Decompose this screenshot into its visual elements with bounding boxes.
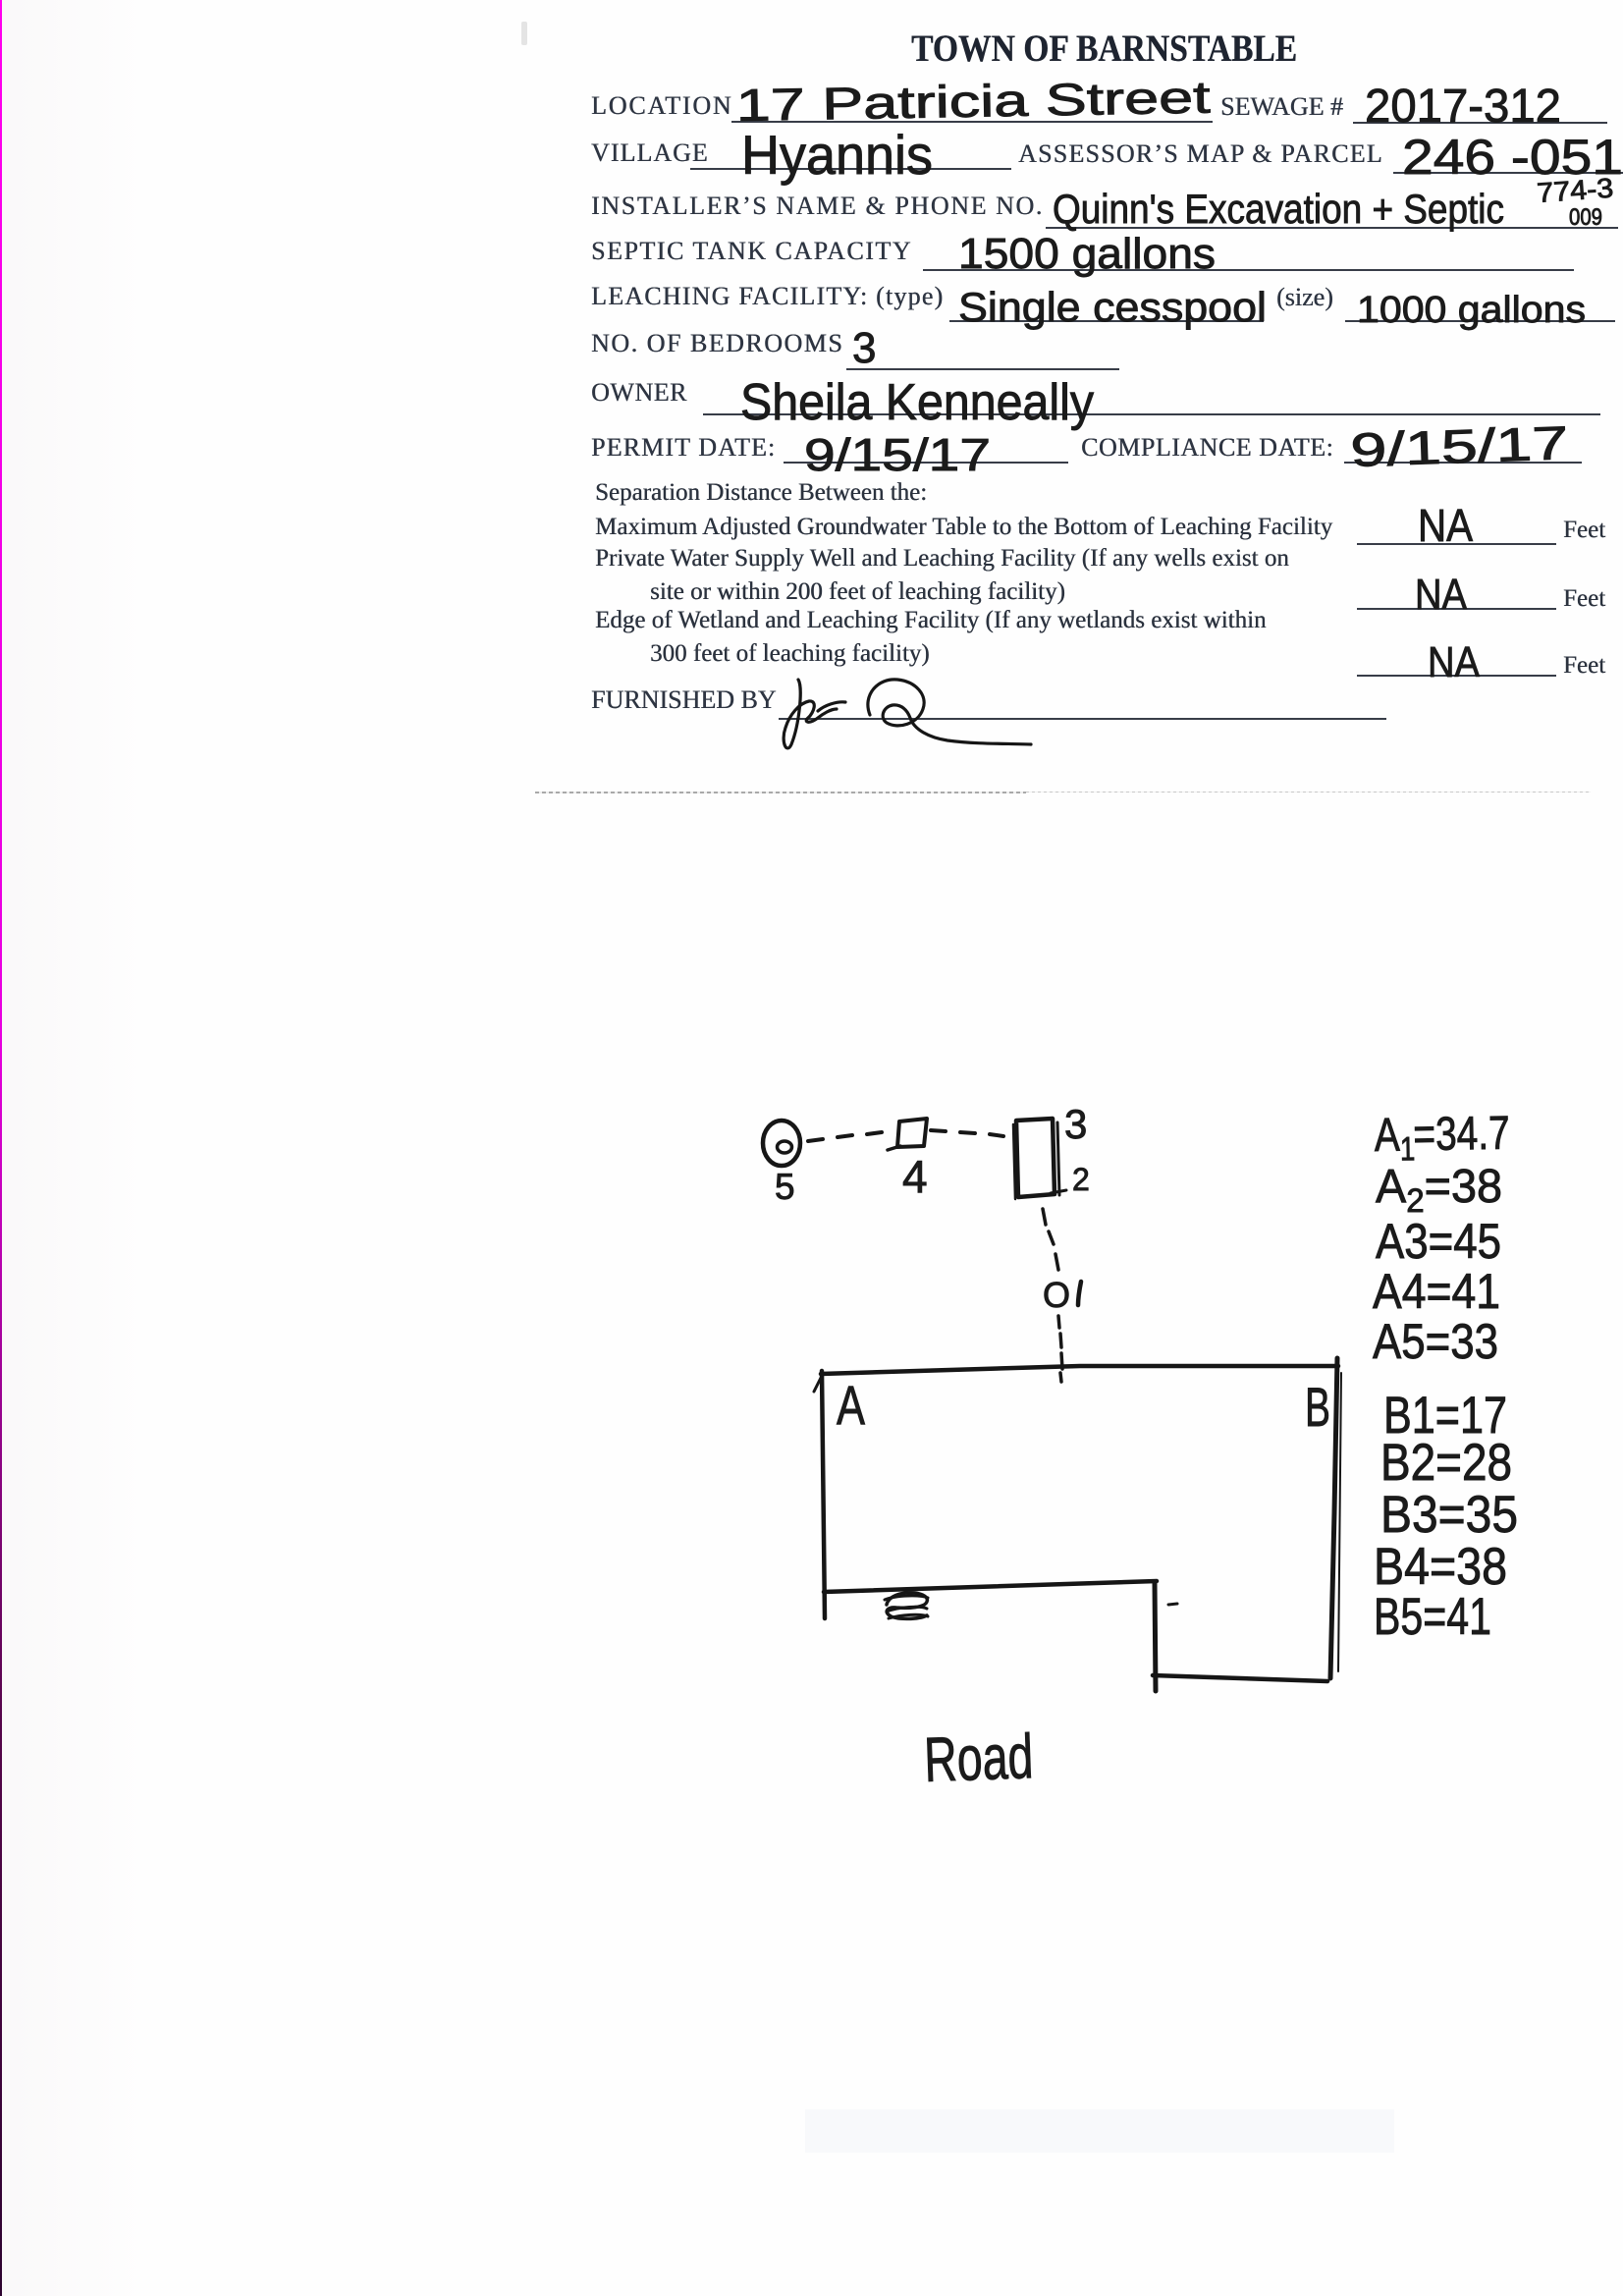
svg-text:NA: NA bbox=[1418, 500, 1473, 551]
svg-text:A3=45: A3=45 bbox=[1376, 1214, 1501, 1269]
svg-text:O: O bbox=[1043, 1275, 1070, 1315]
svg-text:Sheila Kenneally: Sheila Kenneally bbox=[740, 374, 1094, 431]
svg-text:B3=35: B3=35 bbox=[1380, 1486, 1518, 1544]
svg-text:B5=41: B5=41 bbox=[1374, 1588, 1491, 1646]
svg-text:774-3: 774-3 bbox=[1536, 173, 1614, 208]
svg-text:NA: NA bbox=[1415, 571, 1468, 619]
svg-text:A4=41: A4=41 bbox=[1373, 1264, 1500, 1319]
svg-text:1000 gallons: 1000 gallons bbox=[1357, 290, 1586, 331]
svg-text:A5=33: A5=33 bbox=[1373, 1314, 1498, 1369]
svg-text:Hyannis: Hyannis bbox=[741, 124, 933, 186]
svg-text:4: 4 bbox=[902, 1151, 928, 1202]
svg-text:Road: Road bbox=[923, 1721, 1034, 1795]
svg-text:3: 3 bbox=[1064, 1101, 1087, 1147]
svg-text:2: 2 bbox=[1072, 1162, 1090, 1197]
svg-text:A: A bbox=[837, 1374, 865, 1436]
svg-text:2017-312: 2017-312 bbox=[1365, 81, 1561, 133]
svg-text:17 Patricia Street: 17 Patricia Street bbox=[735, 72, 1211, 131]
svg-text:A2=38: A2=38 bbox=[1376, 1161, 1502, 1220]
svg-text:9/15/17: 9/15/17 bbox=[804, 429, 991, 480]
svg-text:009: 009 bbox=[1569, 204, 1602, 231]
svg-text:A1=34.7: A1=34.7 bbox=[1374, 1108, 1510, 1169]
svg-text:Quinn's Excavation + Septic: Quinn's Excavation + Septic bbox=[1053, 186, 1504, 232]
svg-text:3: 3 bbox=[852, 324, 876, 372]
svg-text:B2=28: B2=28 bbox=[1380, 1434, 1512, 1492]
svg-text:5: 5 bbox=[775, 1167, 795, 1207]
svg-text:NA: NA bbox=[1428, 638, 1481, 686]
svg-text:B: B bbox=[1305, 1376, 1330, 1438]
svg-text:Single cesspool: Single cesspool bbox=[958, 284, 1267, 330]
svg-text:9/15/17: 9/15/17 bbox=[1350, 417, 1570, 477]
svg-text:1500 gallons: 1500 gallons bbox=[958, 230, 1216, 278]
